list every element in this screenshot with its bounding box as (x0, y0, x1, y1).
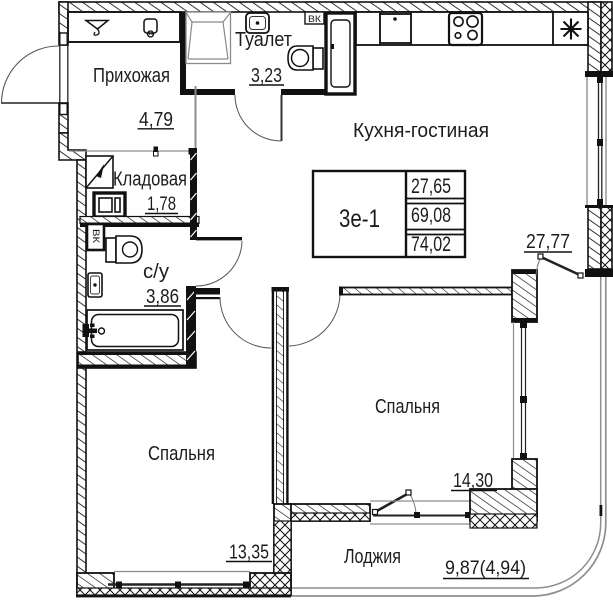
svg-text:с/у: с/у (143, 261, 169, 283)
svg-text:27,77: 27,77 (526, 231, 570, 253)
svg-text:Спальня: Спальня (375, 396, 440, 418)
svg-text:Туалет: Туалет (235, 29, 292, 51)
svg-text:ВК: ВК (308, 14, 322, 24)
svg-text:Спальня: Спальня (148, 443, 215, 465)
svg-text:Кладовая: Кладовая (113, 169, 187, 191)
svg-text:ВК: ВК (90, 229, 101, 244)
svg-text:69,08: 69,08 (411, 204, 451, 227)
svg-text:4,79: 4,79 (139, 109, 173, 131)
svg-text:Прихожая: Прихожая (93, 65, 170, 87)
svg-text:3,23: 3,23 (251, 65, 282, 87)
svg-text:14,30: 14,30 (453, 470, 493, 492)
svg-text:3,86: 3,86 (146, 286, 179, 308)
svg-text:Кухня-гостиная: Кухня-гостиная (353, 120, 489, 142)
svg-text:13,35: 13,35 (229, 542, 269, 564)
svg-text:1,78: 1,78 (147, 194, 176, 215)
svg-text:3е-1: 3е-1 (339, 205, 380, 233)
svg-text:74,02: 74,02 (411, 233, 451, 256)
svg-text:Лоджия: Лоджия (344, 546, 401, 568)
svg-text:27,65: 27,65 (411, 175, 451, 198)
svg-text:9,87(4,94): 9,87(4,94) (445, 558, 526, 579)
